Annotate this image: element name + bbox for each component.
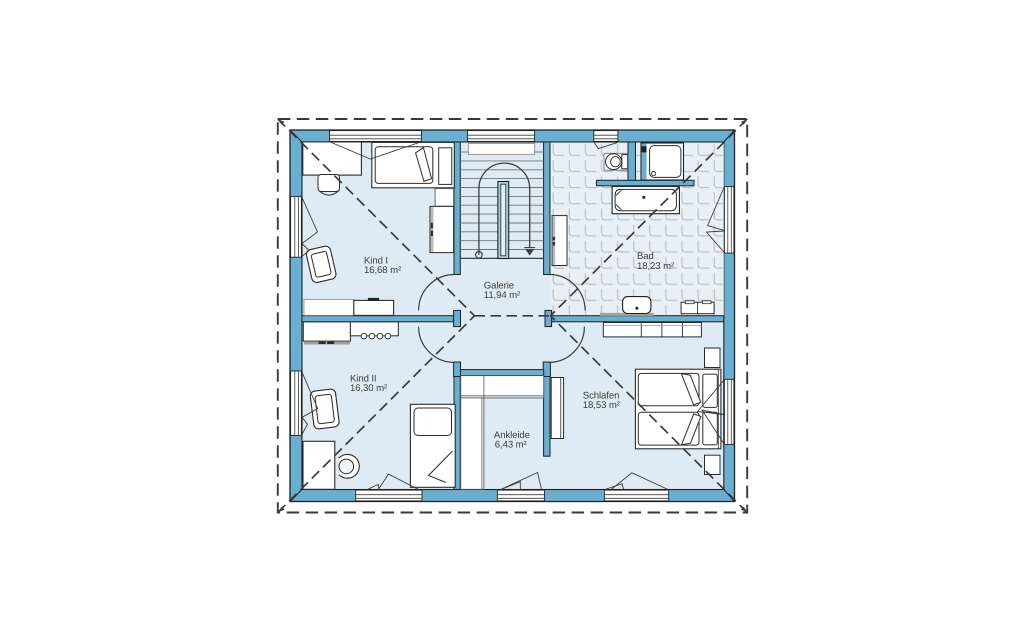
- svg-text:16,68 m²: 16,68 m²: [364, 265, 402, 276]
- svg-text:11,94 m²: 11,94 m²: [484, 290, 521, 301]
- svg-text:18,23 m²: 18,23 m²: [637, 261, 675, 272]
- svg-text:16,30 m²: 16,30 m²: [350, 383, 388, 394]
- svg-text:18,53 m²: 18,53 m²: [583, 400, 621, 411]
- svg-text:6,43 m²: 6,43 m²: [495, 440, 528, 451]
